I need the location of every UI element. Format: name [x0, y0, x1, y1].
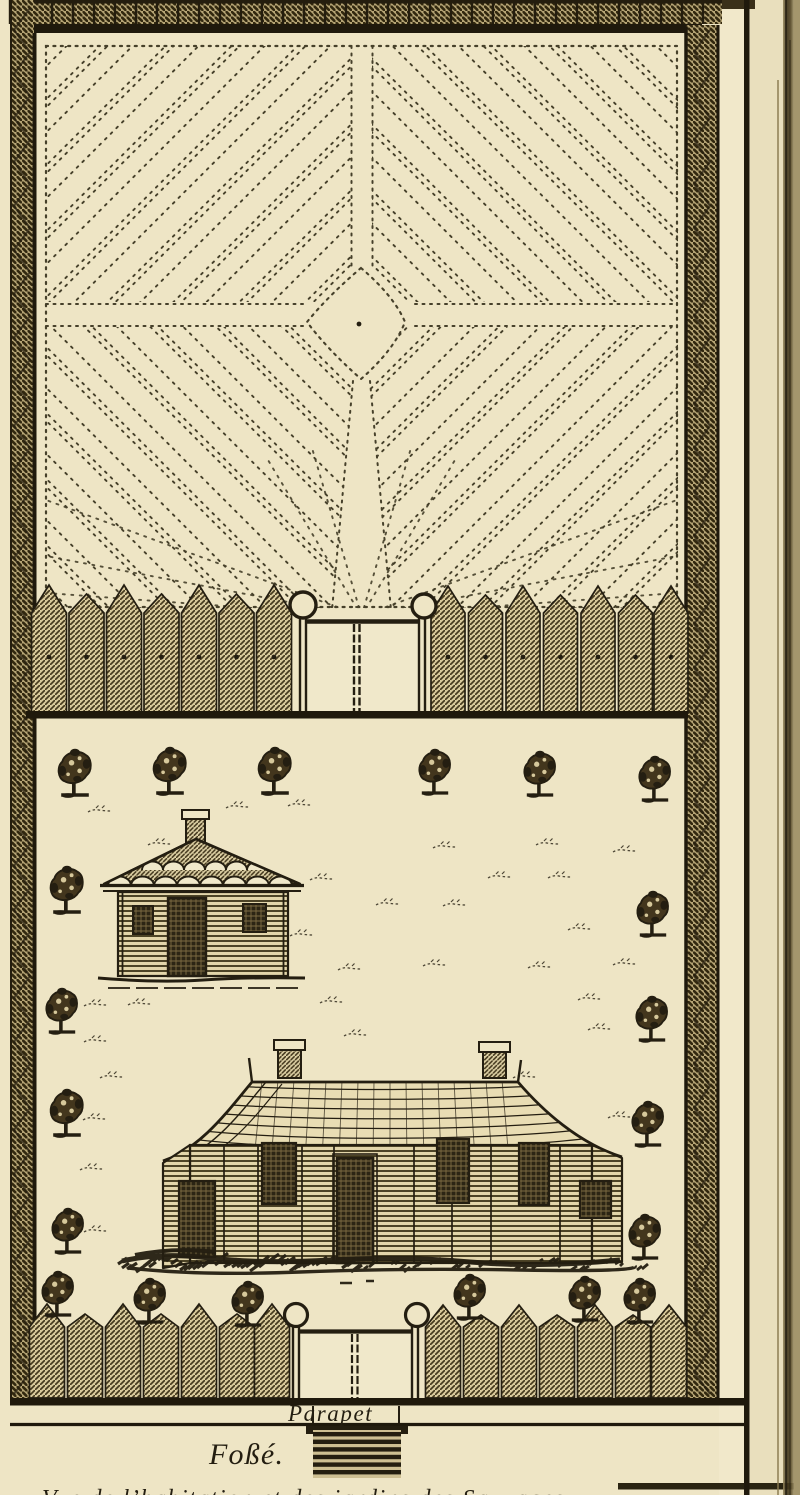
svg-text:Foßé.: Foßé. [208, 1438, 284, 1471]
svg-text:Vue de l’habitation et des jar: Vue de l’habitation et des jardins des S… [42, 1486, 565, 1495]
svg-text:Parapet: Parapet [287, 1401, 373, 1426]
